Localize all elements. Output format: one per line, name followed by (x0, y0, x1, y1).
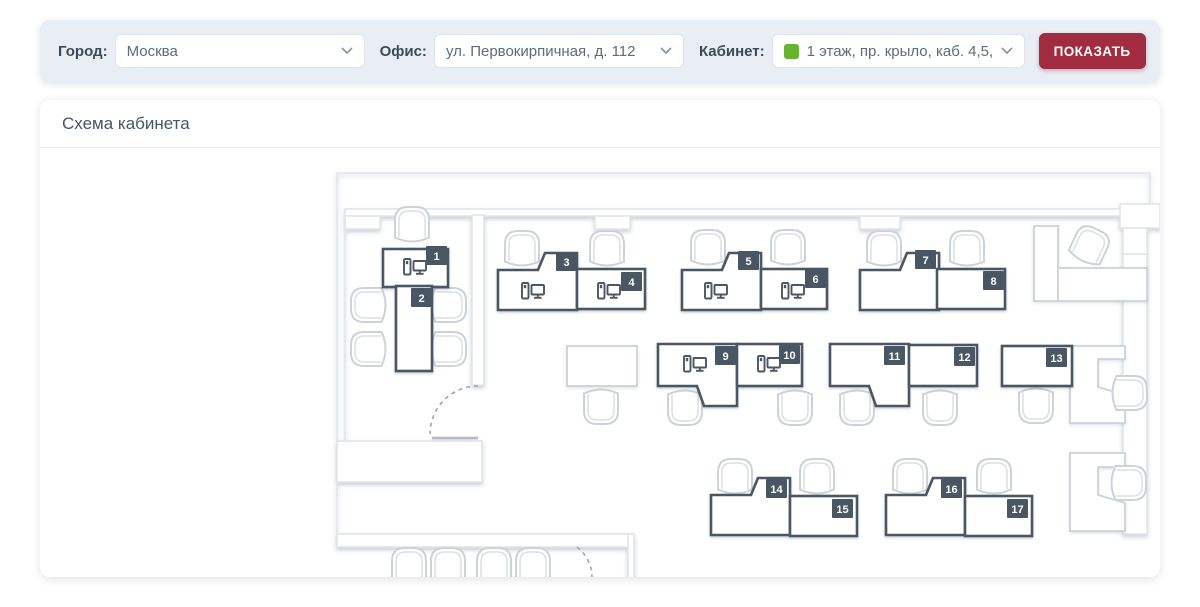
chair-icon (392, 548, 426, 577)
chair-icon (431, 332, 467, 366)
office-floor-plan: 1234567891011121314151617 (40, 148, 1160, 577)
desk-15[interactable]: 15 (790, 496, 857, 536)
chair-icon (950, 231, 984, 267)
chair-icon (977, 459, 1011, 495)
city-select[interactable]: Москва (115, 34, 365, 68)
desk-number: 3 (563, 257, 569, 269)
chair-icon (477, 548, 511, 577)
chair-icon (505, 231, 539, 267)
city-select-value: Москва (127, 43, 333, 60)
chevron-down-icon (1001, 47, 1013, 55)
office-label: Офис: (380, 43, 427, 60)
desk-2[interactable]: 2 (396, 286, 432, 371)
scheme-panel: Схема кабинета (40, 100, 1160, 577)
chair-icon (771, 230, 805, 266)
desk-number: 2 (418, 293, 424, 305)
desk-number: 12 (958, 352, 970, 364)
desk-number: 9 (722, 351, 728, 363)
panel-header: Схема кабинета (40, 100, 1160, 148)
chair-icon (923, 390, 957, 426)
desk-8[interactable]: 8 (937, 269, 1005, 309)
chair-icon (1067, 222, 1113, 269)
chair-icon (431, 548, 465, 577)
chair-icon (668, 390, 702, 426)
chair-icon (691, 230, 725, 266)
desk-number: 4 (628, 277, 635, 289)
side-table (567, 346, 637, 386)
desk-6[interactable]: 6 (761, 269, 827, 309)
desk-number: 10 (783, 350, 795, 362)
show-button[interactable]: ПОКАЗАТЬ (1039, 33, 1146, 69)
chair-icon (1019, 388, 1053, 424)
city-field: Город: Москва (58, 34, 365, 68)
chair-icon (867, 231, 901, 267)
chevron-down-icon (341, 47, 353, 55)
chair-icon (516, 548, 550, 577)
desk-number: 8 (990, 276, 996, 288)
desk-12[interactable]: 12 (909, 345, 977, 386)
city-label: Город: (58, 43, 108, 60)
chair-icon (718, 459, 752, 495)
office-field: Офис: ул. Первокирпичная, д. 112 (380, 34, 684, 68)
chair-icon (584, 389, 618, 425)
desk-number: 15 (836, 504, 848, 516)
chair-icon (1111, 466, 1147, 500)
desk-number: 7 (922, 255, 928, 267)
office-select[interactable]: ул. Первокирпичная, д. 112 (434, 34, 684, 68)
chair-icon (590, 231, 624, 267)
room-label: Кабинет: (699, 43, 765, 60)
chair-icon (840, 390, 874, 426)
green-square-icon (784, 44, 799, 59)
filter-toolbar: Город: Москва Офис: ул. Первокирпичная, … (40, 20, 1160, 82)
desk-1[interactable]: 1 (383, 246, 448, 287)
desk-number: 11 (889, 351, 901, 363)
room-field: Кабинет: 1 этаж, пр. крыло, каб. 4,5,П (699, 34, 1025, 68)
desk-number: 17 (1011, 504, 1023, 516)
chair-icon (431, 288, 467, 322)
desk-number: 14 (770, 484, 783, 496)
office-select-value: ул. Первокирпичная, д. 112 (446, 43, 652, 60)
desk-number: 1 (433, 251, 439, 263)
chair-icon (351, 288, 387, 322)
desk-number: 5 (745, 256, 751, 268)
room-select-value: 1 этаж, пр. крыло, каб. 4,5,П (807, 43, 993, 60)
chair-icon (351, 332, 387, 366)
page-title: Схема кабинета (62, 114, 190, 134)
desk-10[interactable]: 10 (737, 344, 802, 386)
desk-17[interactable]: 17 (965, 496, 1032, 536)
chair-icon (395, 207, 429, 243)
desk-number: 6 (812, 274, 818, 286)
chair-icon (778, 390, 812, 426)
desk-number: 16 (945, 484, 957, 496)
room-select[interactable]: 1 этаж, пр. крыло, каб. 4,5,П (772, 34, 1025, 68)
desk-number: 13 (1050, 353, 1062, 365)
chair-icon (893, 459, 927, 495)
furniture-desk (1034, 226, 1058, 301)
chair-icon (800, 459, 834, 495)
chair-icon (1112, 376, 1148, 410)
desk-13[interactable]: 13 (1002, 346, 1072, 386)
chevron-down-icon (660, 47, 672, 55)
desk-4[interactable]: 4 (577, 269, 645, 309)
furniture-desk (1058, 268, 1147, 301)
